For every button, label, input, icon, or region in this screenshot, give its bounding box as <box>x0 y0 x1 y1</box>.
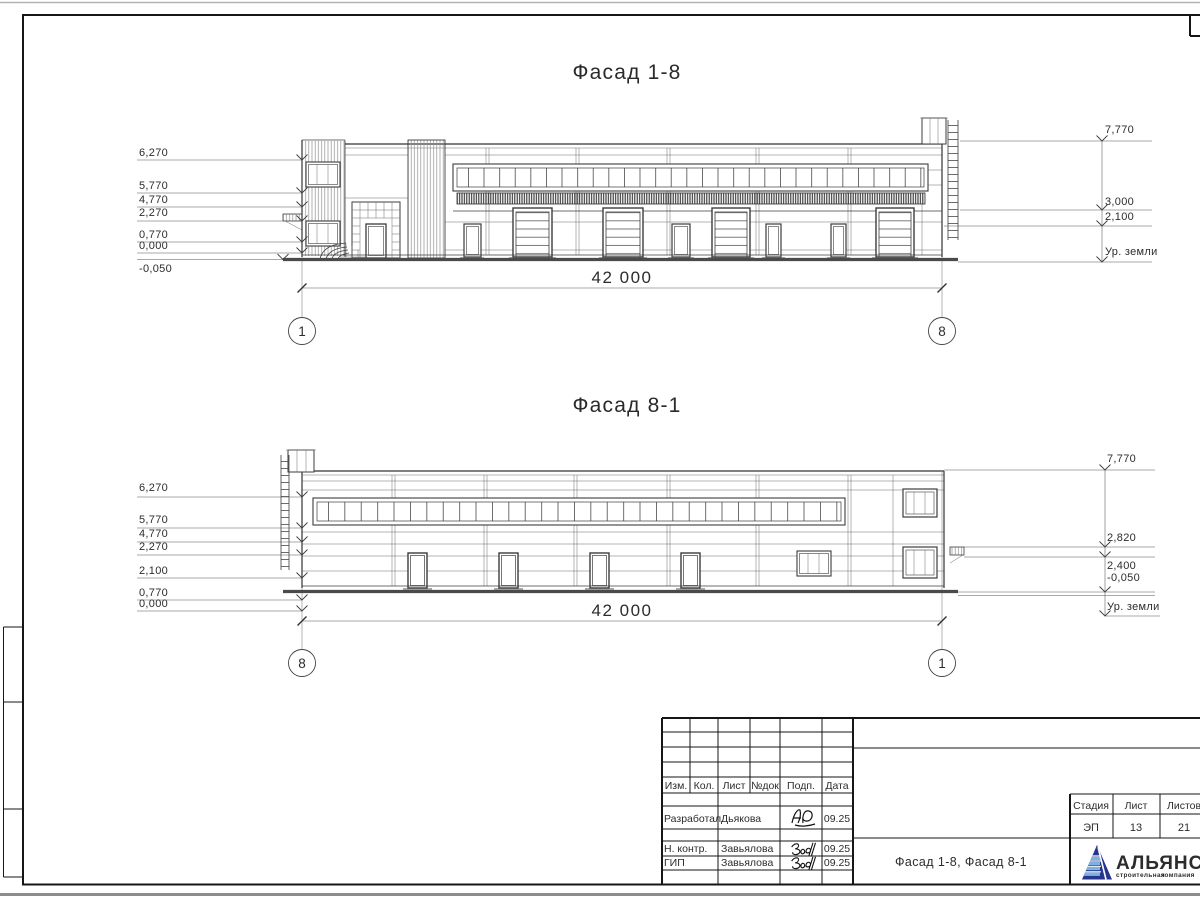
service-door <box>676 553 705 591</box>
dimension-text: 42 000 <box>592 601 653 620</box>
elevation-mark-label: 0,000 <box>139 598 168 610</box>
striped-pylon <box>408 140 445 258</box>
window <box>306 221 340 246</box>
date-value: 09.25 <box>824 813 850 825</box>
sheet-value: 13 <box>1130 822 1142 834</box>
entry-door <box>366 224 386 258</box>
parapet-box <box>920 118 948 144</box>
clerestory-band <box>453 164 928 191</box>
window <box>903 489 937 517</box>
sheet-frame <box>22 14 1200 885</box>
left-margin-boxes <box>4 627 24 877</box>
column-header: Подп. <box>787 780 815 792</box>
company-logo: АЛЬЯНС строительная компания <box>1082 845 1200 880</box>
column-header: Дата <box>825 780 848 792</box>
elevation-mark-label: 2,400 <box>1107 560 1136 572</box>
canopy <box>283 214 302 230</box>
elevation-mark-label: 2,270 <box>139 541 168 553</box>
elevation-mark-label: -0,050 <box>1107 572 1140 584</box>
dimension-42000: 42 000 <box>298 601 947 626</box>
axis-bubble-left: 1 <box>289 318 316 345</box>
garage-door <box>708 208 754 260</box>
elevation-mark-label: 4,770 <box>139 528 168 540</box>
person-name: Завьялова <box>721 857 773 869</box>
elevation-mark-label: 6,270 <box>139 482 168 494</box>
axis-bubble-left: 8 <box>289 650 316 677</box>
entrance-portal <box>352 202 400 258</box>
canopy <box>950 547 964 563</box>
roof-ladder-icon <box>948 120 958 240</box>
logo-tagline-1: строительная <box>1116 872 1165 879</box>
window <box>797 551 831 576</box>
role-label: Разработал <box>664 813 721 825</box>
date-value: 09.25 <box>824 857 850 869</box>
column-header: Лист <box>723 780 746 792</box>
service-door <box>403 553 432 591</box>
elevation-mark-label: -0,050 <box>139 263 172 275</box>
signature <box>792 810 815 826</box>
dimension-text: 42 000 <box>592 268 653 287</box>
person-name: Дьякова <box>721 813 761 825</box>
column-header: №док <box>751 780 779 792</box>
corrugated-band <box>457 193 925 204</box>
paper-edges <box>0 3 1200 895</box>
elevation-mark-label: 4,770 <box>139 194 168 206</box>
elevation-mark-label: 0,000 <box>139 240 168 252</box>
logo-tagline-2: компания <box>1161 872 1195 879</box>
axis-number: 8 <box>938 324 946 339</box>
elevation-marks-right: 7,770 3,000 2,100 Ур. земли <box>944 124 1158 262</box>
elevation-marks-left: 6,270 5,770 4,770 2,270 0,770 0,000 -0,0… <box>137 147 308 275</box>
elevation-mark-label: 7,770 <box>1107 453 1136 465</box>
stage-sheet-table: Стадия Лист Листов ЭП 13 21 <box>1073 800 1200 834</box>
axis-number: 1 <box>298 324 306 339</box>
building-outline <box>302 471 944 588</box>
role-label: ГИП <box>664 857 685 869</box>
facade-8-1-title: Фасад 8-1 <box>572 394 681 417</box>
column-header: Кол. <box>694 780 715 792</box>
facade-1-8-view: Фасад 1-8 <box>137 61 1158 345</box>
window <box>306 162 340 187</box>
elevation-mark-label: 5,770 <box>139 514 168 526</box>
elevation-mark-label: 5,770 <box>139 180 168 192</box>
window <box>903 547 937 578</box>
service-door <box>494 553 523 591</box>
signature <box>792 857 816 871</box>
axis-number: 1 <box>938 656 946 671</box>
revision-table-header: Изм. Кол. Лист №док Подп. Дата <box>665 780 849 792</box>
sheets-label: Листов <box>1167 800 1200 812</box>
date-value: 09.25 <box>824 843 850 855</box>
doc-title-cell: Фасад 1-8, Фасад 8-1 <box>895 855 1027 869</box>
stage-value: ЭП <box>1083 822 1099 834</box>
elevation-mark-label: 2,820 <box>1107 532 1136 544</box>
person-name: Завьялова <box>721 843 773 855</box>
service-door <box>585 553 614 591</box>
facade-1-8-title: Фасад 1-8 <box>572 61 681 84</box>
axis-bubble-right: 1 <box>929 650 956 677</box>
sheets-value: 21 <box>1178 822 1190 834</box>
stage-label: Стадия <box>1073 800 1109 812</box>
axis-bubble-right: 8 <box>929 318 956 345</box>
hall-wall <box>302 471 944 586</box>
role-label: Н. контр. <box>664 843 707 855</box>
parapet-box <box>286 450 316 472</box>
signature <box>792 843 816 857</box>
axis-number: 8 <box>298 656 306 671</box>
clerestory-band <box>313 498 845 525</box>
elevation-mark-label: 6,270 <box>139 147 168 159</box>
garage-door <box>509 208 556 260</box>
elevation-marks-right: 7,770 2,820 2,400 -0,050 Ур. земли <box>944 453 1160 616</box>
elevation-mark-label: 2,100 <box>1105 211 1134 223</box>
elevation-mark-label: 3,000 <box>1105 196 1134 208</box>
elevation-mark-label: Ур. земли <box>1105 246 1158 258</box>
elevation-mark-label: 7,770 <box>1105 124 1134 136</box>
dimension-42000: 42 000 <box>298 268 947 293</box>
roof-ladder-icon <box>281 455 289 570</box>
elevation-mark-label: 2,270 <box>139 207 168 219</box>
garage-door <box>599 208 647 260</box>
elevation-mark-label: Ур. земли <box>1107 601 1160 613</box>
facade-8-1-view: Фасад 8-1 <box>137 394 1160 677</box>
logo-name: АЛЬЯНС <box>1116 853 1200 874</box>
drawing-sheet: Фасад 1-8 <box>0 0 1200 900</box>
garage-door <box>872 208 918 260</box>
sheet-canvas: Фасад 1-8 <box>0 0 1200 900</box>
elevation-mark-label: 2,100 <box>139 565 168 577</box>
left-tower <box>302 140 345 257</box>
logo-pyramid-icon <box>1082 845 1112 880</box>
column-header: Изм. <box>665 780 688 792</box>
title-block: Изм. Кол. Лист №док Подп. Дата Разработа… <box>662 718 1200 885</box>
sheet-label: Лист <box>1125 800 1148 812</box>
